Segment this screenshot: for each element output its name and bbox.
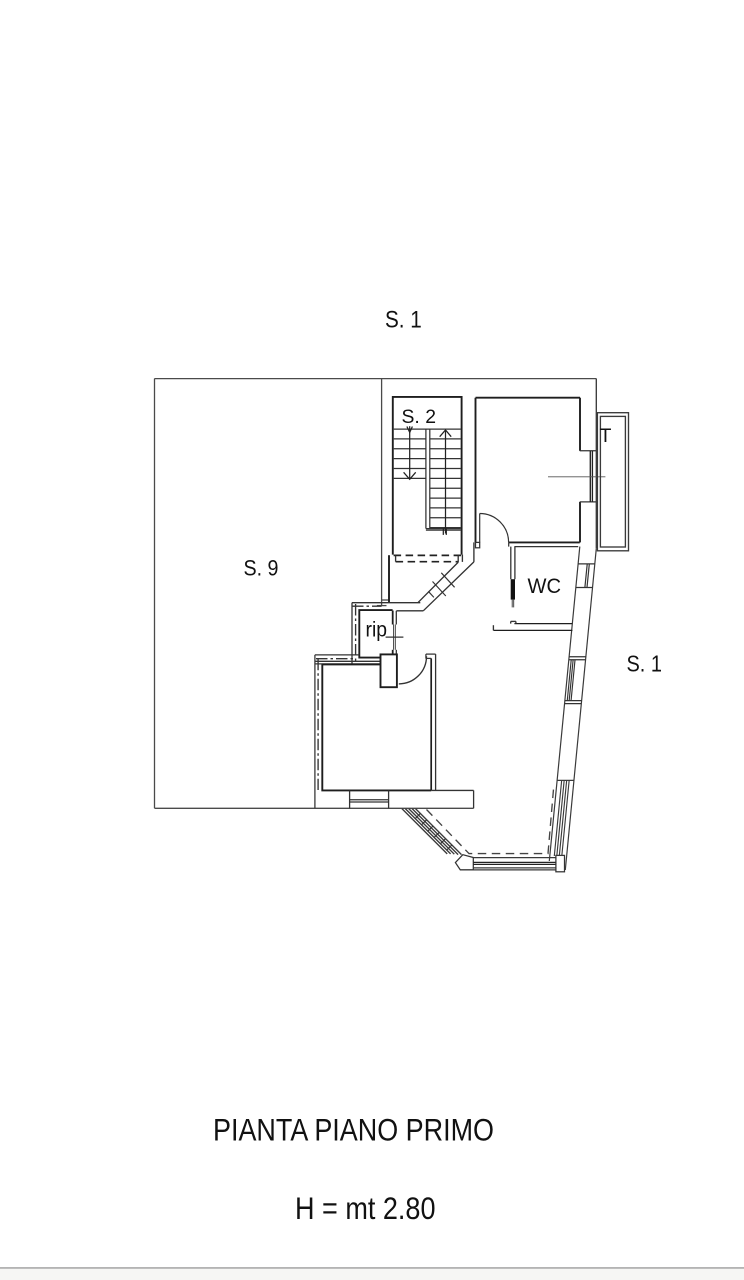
svg-text:PIANTA PIANO PRIMO: PIANTA PIANO PRIMO: [213, 1112, 494, 1148]
svg-text:S. 1: S. 1: [385, 307, 422, 334]
svg-text:H = mt 2.80: H = mt 2.80: [295, 1190, 436, 1226]
svg-text:S. 2: S. 2: [402, 406, 437, 428]
svg-text:S. 1: S. 1: [627, 650, 663, 676]
svg-text:S. 9: S. 9: [244, 556, 279, 581]
svg-text:T: T: [600, 425, 612, 447]
svg-text:rip: rip: [366, 619, 388, 642]
svg-text:WC: WC: [528, 575, 562, 598]
